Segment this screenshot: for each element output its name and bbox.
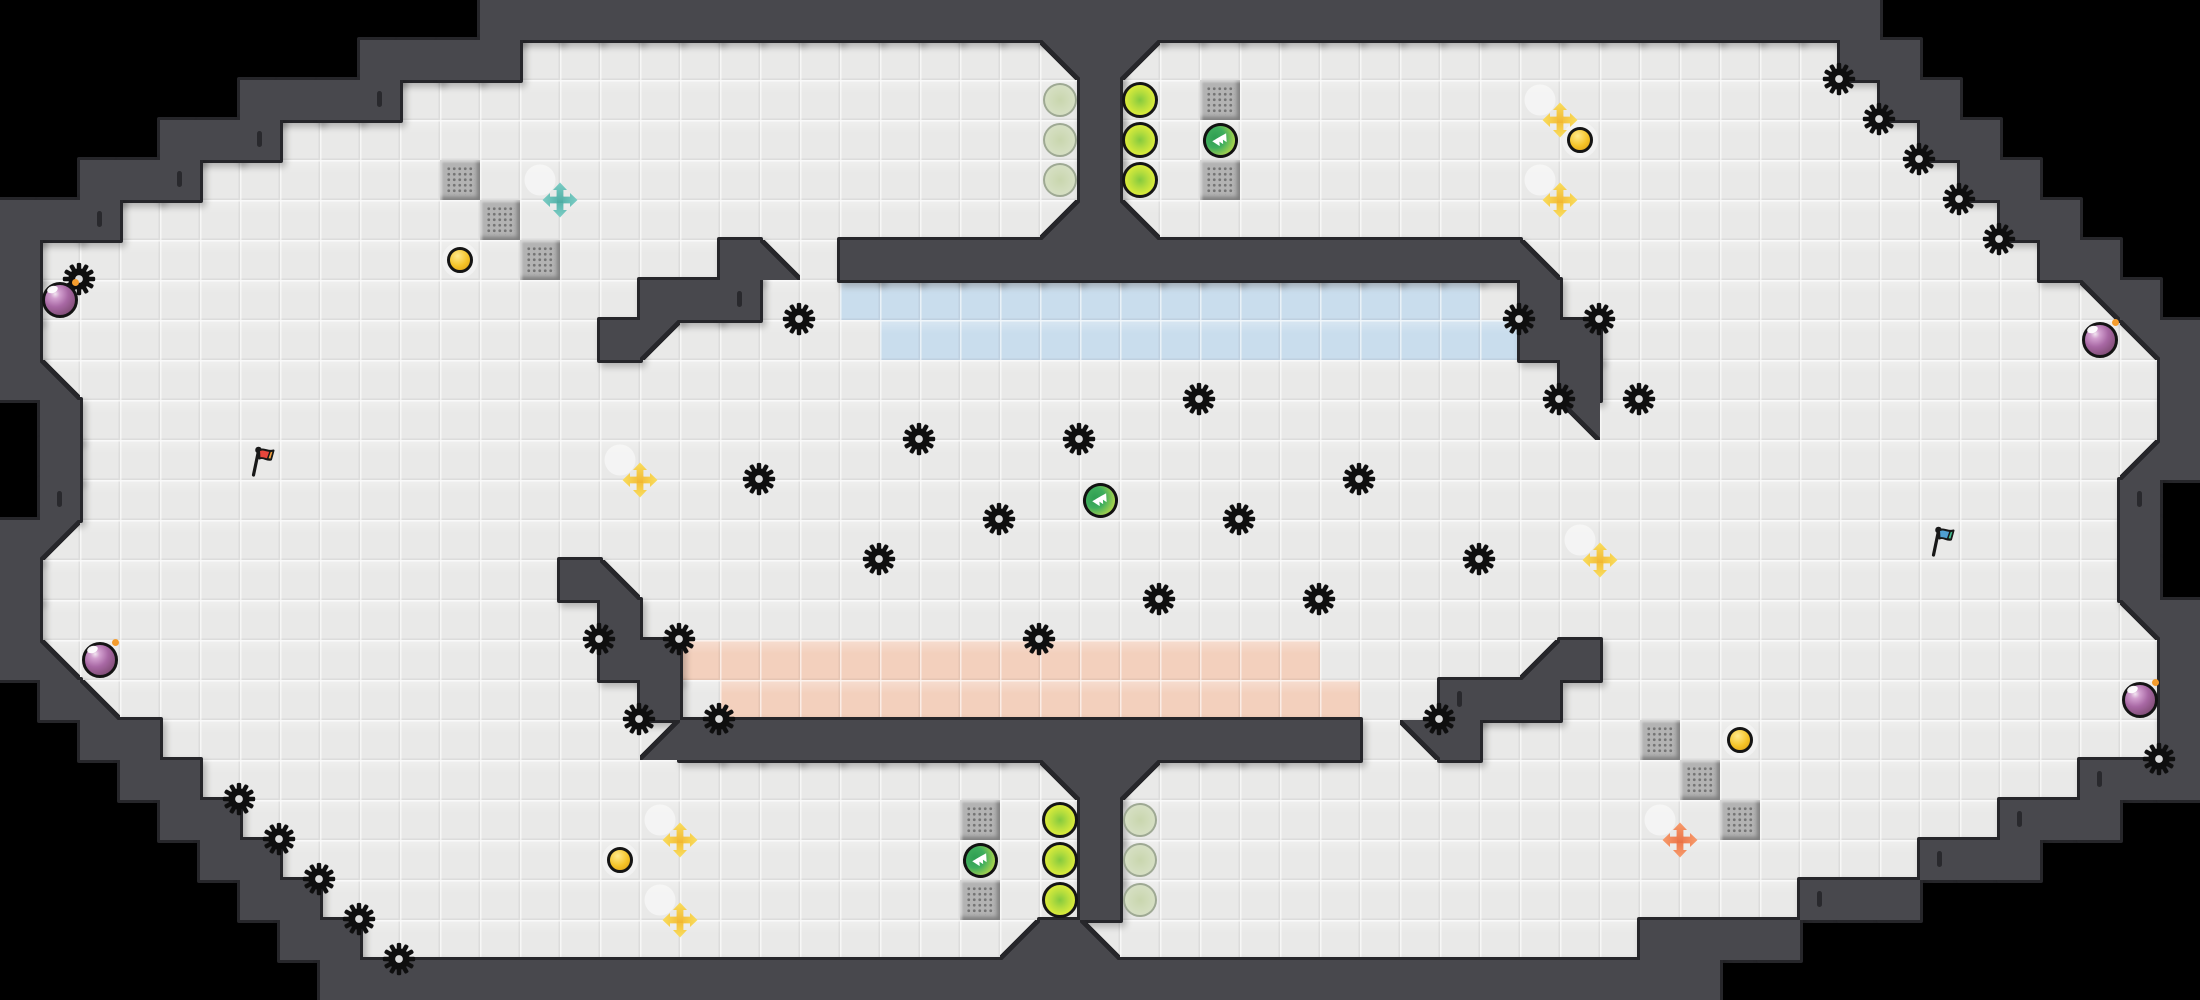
spike-icon xyxy=(1920,160,1960,200)
spike-glyph xyxy=(962,482,999,519)
button-body xyxy=(1567,127,1593,153)
spike-glyph xyxy=(842,522,879,559)
gate-body xyxy=(520,240,560,280)
spike-glyph xyxy=(242,802,279,839)
boost-icon-yellow xyxy=(640,880,680,920)
boost-glyph xyxy=(1520,160,1560,200)
boost-glyph xyxy=(1560,520,1600,560)
orb-faded xyxy=(1040,160,1080,200)
gate-tile xyxy=(440,160,480,200)
orb-bright xyxy=(1120,160,1160,200)
boost-icon-yellow xyxy=(1520,80,1560,120)
spike-glyph xyxy=(1322,442,1359,479)
button-body xyxy=(1727,727,1753,753)
boost-icon-yellow xyxy=(640,800,680,840)
spike-glyph xyxy=(1562,282,1599,319)
spike-glyph xyxy=(1282,562,1319,599)
spike-glyph xyxy=(882,402,919,439)
spike-icon xyxy=(1160,360,1200,400)
gate-tile xyxy=(1680,760,1720,800)
spike-glyph xyxy=(1202,482,1239,519)
spike-icon xyxy=(1560,280,1600,320)
boost-icon-blue xyxy=(520,160,560,200)
orb-bright xyxy=(1040,880,1080,920)
spike-glyph xyxy=(1602,362,1639,399)
spike-glyph xyxy=(202,762,239,799)
spike-glyph xyxy=(1002,602,1039,639)
spike-glyph xyxy=(1522,362,1559,399)
spike-icon xyxy=(40,240,80,280)
spike-icon xyxy=(320,880,360,920)
map-canvas[interactable] xyxy=(0,0,2200,1000)
spike-icon xyxy=(1520,360,1560,400)
boost-icon-red xyxy=(1640,800,1680,840)
gate-tile xyxy=(960,800,1000,840)
spike-glyph xyxy=(1922,162,1959,199)
spike-icon xyxy=(1480,280,1520,320)
spike-icon xyxy=(1800,40,1840,80)
bomb-body xyxy=(42,282,78,318)
boost-icon-yellow xyxy=(1520,160,1560,200)
gate-body xyxy=(1720,800,1760,840)
flag-red-glyph xyxy=(240,440,280,480)
button-icon xyxy=(600,840,640,880)
powerup-icon xyxy=(1200,120,1240,160)
orb-faded xyxy=(1040,80,1080,120)
gate-tile xyxy=(960,880,1000,920)
orb-body xyxy=(1123,843,1157,877)
spike-glyph xyxy=(682,682,719,719)
spike-icon xyxy=(1400,680,1440,720)
gate-tile xyxy=(1640,720,1680,760)
gate-body xyxy=(960,800,1000,840)
gate-tile xyxy=(1200,160,1240,200)
spike-glyph xyxy=(642,602,679,639)
orb-bright xyxy=(1040,840,1080,880)
gate-body xyxy=(960,880,1000,920)
orb-body xyxy=(1042,882,1078,918)
spike-icon xyxy=(1000,600,1040,640)
spike-glyph xyxy=(1962,202,1999,239)
gate-body xyxy=(480,200,520,240)
spike-glyph xyxy=(1802,42,1839,79)
spike-icon xyxy=(680,680,720,720)
gate-body xyxy=(440,160,480,200)
spike-icon xyxy=(1440,520,1480,560)
spike-icon xyxy=(280,840,320,880)
orb-bright xyxy=(1040,800,1080,840)
orb-faded xyxy=(1040,120,1080,160)
spike-glyph xyxy=(1842,82,1879,119)
spike-icon xyxy=(760,280,800,320)
gate-body xyxy=(1200,160,1240,200)
spike-icon xyxy=(200,760,240,800)
spike-icon xyxy=(600,680,640,720)
spike-icon xyxy=(1200,480,1240,520)
boost-glyph xyxy=(640,800,680,840)
button-icon xyxy=(1720,720,1760,760)
spike-glyph xyxy=(1882,122,1919,159)
gate-tile xyxy=(1720,800,1760,840)
spike-icon xyxy=(640,600,680,640)
spike-icon xyxy=(240,800,280,840)
spike-glyph xyxy=(322,882,359,919)
orb-body xyxy=(1123,803,1157,837)
spike-glyph xyxy=(2122,722,2159,759)
gate-body xyxy=(1640,720,1680,760)
orb-body xyxy=(1042,802,1078,838)
spike-glyph xyxy=(1042,402,1079,439)
spike-icon xyxy=(880,400,920,440)
spike-icon xyxy=(2120,720,2160,760)
powerup-icon xyxy=(960,840,1000,880)
orb-body xyxy=(1043,163,1077,197)
bomb-icon xyxy=(2080,320,2120,360)
orb-bright xyxy=(1120,120,1160,160)
orb-body xyxy=(1043,123,1077,157)
spike-icon xyxy=(840,520,880,560)
bomb-body xyxy=(2122,682,2158,718)
spike-icon xyxy=(1320,440,1360,480)
orb-faded xyxy=(1120,800,1160,840)
orb-body xyxy=(1042,842,1078,878)
spike-icon xyxy=(1960,200,2000,240)
spike-glyph xyxy=(722,442,759,479)
boost-glyph xyxy=(1520,80,1560,120)
boost-glyph xyxy=(520,160,560,200)
flag-blue-glyph xyxy=(1920,520,1960,560)
map-layer xyxy=(0,0,2200,1000)
orb-body xyxy=(1123,883,1157,917)
flag-blue-icon xyxy=(1920,520,1960,560)
spike-icon xyxy=(1040,400,1080,440)
spike-icon xyxy=(560,600,600,640)
button-icon xyxy=(1560,120,1600,160)
spike-icon xyxy=(1880,120,1920,160)
boost-glyph xyxy=(640,880,680,920)
spike-glyph xyxy=(42,242,79,279)
bomb-body xyxy=(82,642,118,678)
spike-glyph xyxy=(1162,362,1199,399)
spike-glyph xyxy=(282,842,319,879)
button-body xyxy=(607,847,633,873)
button-body xyxy=(447,247,473,273)
orb-faded xyxy=(1120,880,1160,920)
spike-icon xyxy=(1600,360,1640,400)
spike-glyph xyxy=(362,922,399,959)
boost-icon-yellow xyxy=(1560,520,1600,560)
bomb-icon xyxy=(40,280,80,320)
powerup-icon xyxy=(1080,480,1120,520)
boost-glyph xyxy=(600,440,640,480)
powerup-body xyxy=(1196,116,1244,164)
boost-icon-yellow xyxy=(600,440,640,480)
spike-glyph xyxy=(1482,282,1519,319)
spike-glyph xyxy=(762,282,799,319)
spike-icon xyxy=(360,920,400,960)
gate-tile xyxy=(520,240,560,280)
bomb-icon xyxy=(80,640,120,680)
orb-faded xyxy=(1120,840,1160,880)
boost-glyph xyxy=(1640,800,1680,840)
spike-glyph xyxy=(602,682,639,719)
spike-icon xyxy=(720,440,760,480)
gate-body xyxy=(1680,760,1720,800)
gate-tile xyxy=(480,200,520,240)
gate-body xyxy=(1200,80,1240,120)
spike-glyph xyxy=(1402,682,1439,719)
spike-icon xyxy=(1120,560,1160,600)
orb-body xyxy=(1122,162,1158,198)
bomb-icon xyxy=(2120,680,2160,720)
orb-body xyxy=(1122,82,1158,118)
spike-icon xyxy=(1840,80,1880,120)
bomb-body xyxy=(2082,322,2118,358)
powerup-body xyxy=(956,836,1004,884)
powerup-body xyxy=(1076,476,1124,524)
gate-tile xyxy=(1200,80,1240,120)
orb-body xyxy=(1043,83,1077,117)
orb-body xyxy=(1122,122,1158,158)
orb-bright xyxy=(1120,80,1160,120)
button-icon xyxy=(440,240,480,280)
spike-icon xyxy=(960,480,1000,520)
spike-glyph xyxy=(1122,562,1159,599)
spike-icon xyxy=(1280,560,1320,600)
spike-glyph xyxy=(1442,522,1479,559)
spike-glyph xyxy=(562,602,599,639)
flag-red-icon xyxy=(240,440,280,480)
